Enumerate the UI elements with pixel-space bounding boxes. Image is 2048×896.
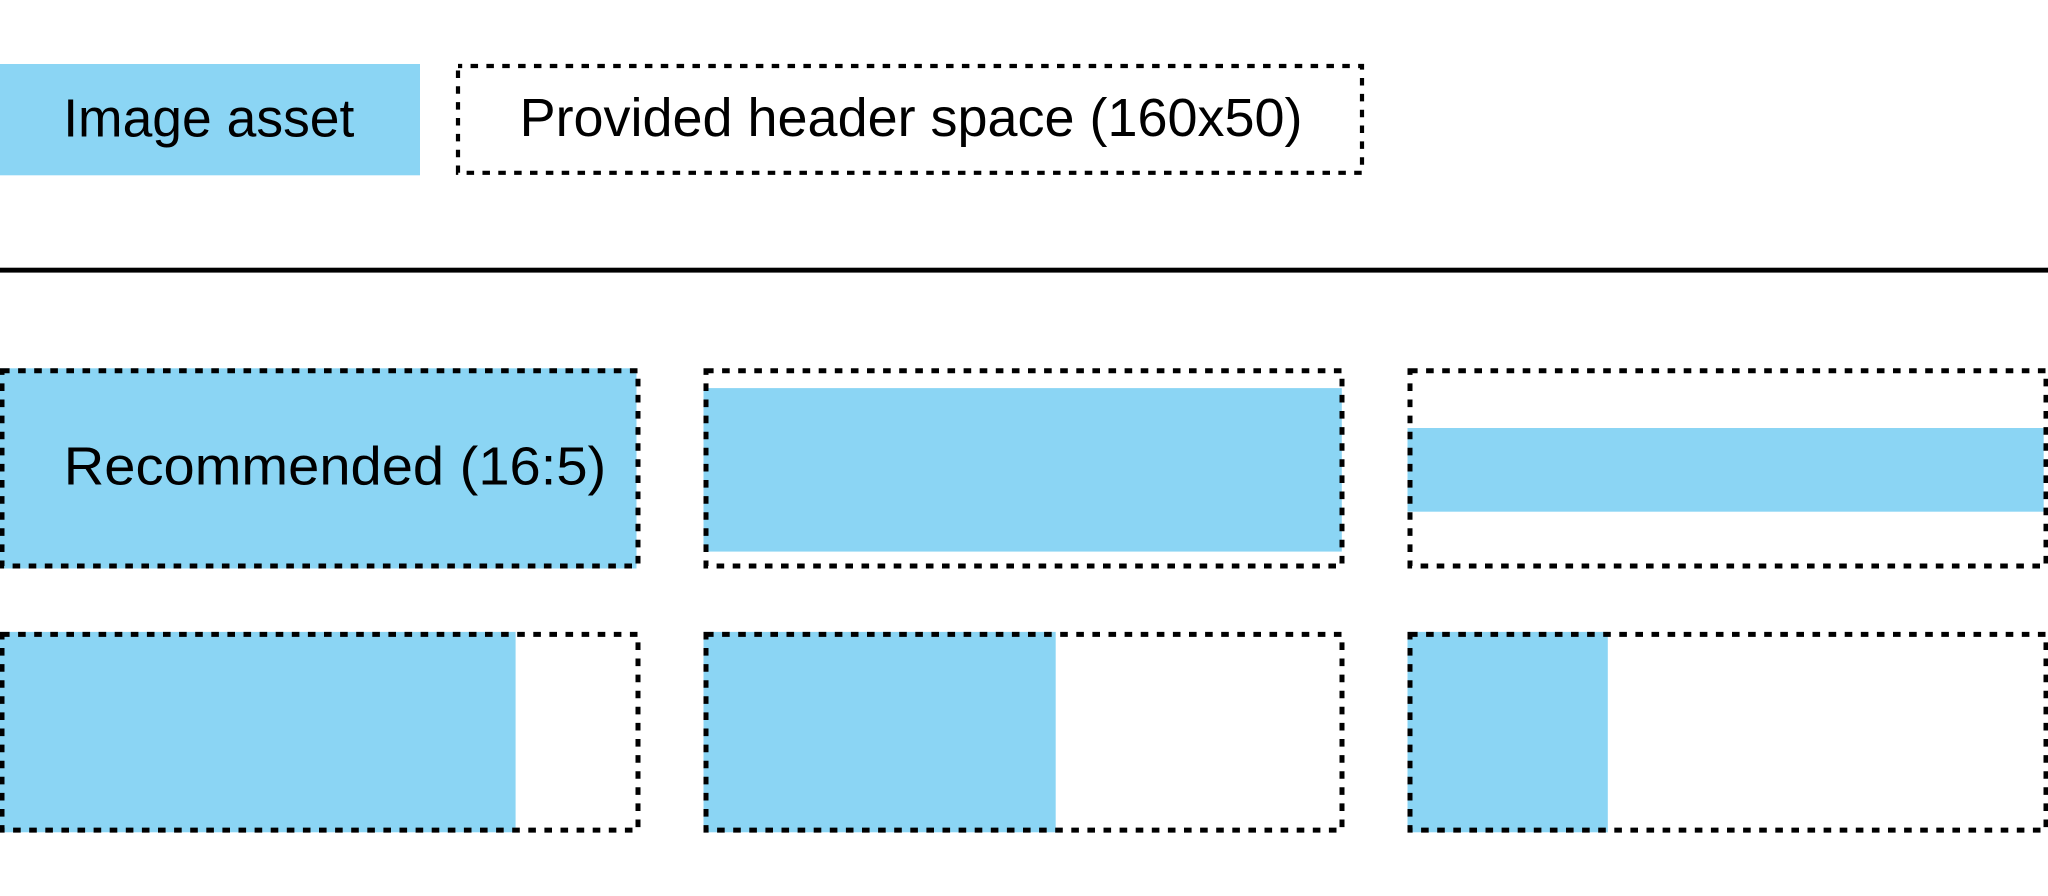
svg-text:Image asset: Image asset [63, 89, 354, 149]
svg-text:Provided header space (160x50): Provided header space (160x50) [520, 88, 1303, 148]
svg-text:Recommended (16:5): Recommended (16:5) [64, 436, 606, 496]
